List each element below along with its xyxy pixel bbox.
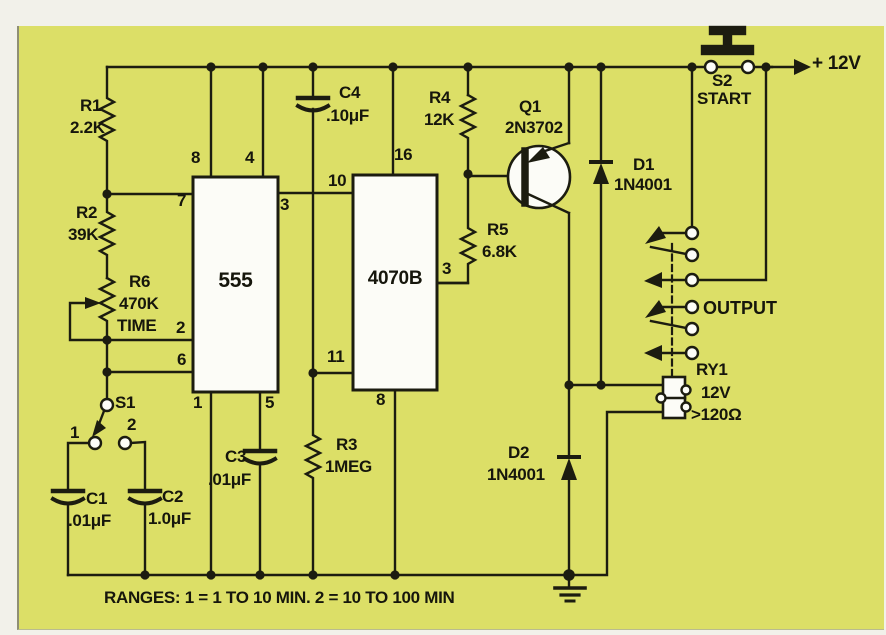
label-r6-value: 470K — [119, 295, 158, 312]
capacitor-c2 — [130, 491, 160, 575]
ground-rail — [68, 412, 663, 575]
label-r4-ref: R4 — [429, 89, 450, 106]
label-s1-ref: S1 — [115, 394, 135, 411]
label-r6-ref: R6 — [129, 273, 150, 290]
transistor-q1 — [508, 143, 570, 385]
label-r1-value: 2.2K — [70, 119, 105, 136]
label-d1-value: 1N4001 — [614, 176, 672, 193]
wiper-arrow-icon — [85, 297, 101, 309]
label-c4-ref: C4 — [339, 84, 360, 101]
label-d2-value: 1N4001 — [487, 466, 545, 483]
ic555-pin3-label: 3 — [280, 196, 289, 213]
ic4070b-label: 4070B — [353, 269, 437, 288]
ranges-note: RANGES: 1 = 1 TO 10 MIN. 2 = 10 TO 100 M… — [104, 589, 455, 606]
label-c4-value: .10μF — [326, 107, 369, 124]
switch-arm-arrow-icon — [92, 420, 106, 437]
ic-4070b — [313, 175, 468, 575]
ic555-pin1-label: 1 — [193, 394, 202, 411]
ic555-pin7-label: 7 — [177, 192, 186, 209]
diode-d1 — [591, 162, 611, 385]
label-r4-value: 12K — [424, 111, 454, 128]
ic555-pin6-label: 6 — [177, 351, 186, 368]
label-q1-ref: Q1 — [519, 98, 541, 115]
switch-s1 — [68, 399, 145, 489]
ic4070b-pin10-label: 10 — [328, 172, 346, 189]
label-c2-value: 1.0μF — [148, 510, 191, 527]
ic-555 — [193, 177, 353, 575]
resistor-r2 — [100, 194, 114, 278]
potentiometer-r6 — [70, 278, 114, 340]
label-s1-pos2: 2 — [127, 416, 136, 433]
ic555-pin8-label: 8 — [191, 149, 200, 166]
label-ry1-value: 12V — [701, 384, 730, 401]
ic4070b-pin11-label: 11 — [327, 348, 344, 365]
label-r5-value: 6.8K — [482, 243, 517, 260]
ic4070b-pin8-label: 8 — [376, 391, 385, 408]
label-d2-ref: D2 — [508, 444, 529, 461]
label-r5-ref: R5 — [487, 221, 508, 238]
power-arrow-icon — [794, 59, 811, 75]
label-c3-value: .01μF — [208, 471, 251, 488]
label-r2-ref: R2 — [76, 204, 97, 221]
ic555-pin4-label: 4 — [245, 149, 254, 166]
label-c3-ref: C3 — [225, 448, 246, 465]
ic4070b-pin16-label: 16 — [394, 146, 412, 163]
label-r3-value: 1MEG — [325, 458, 372, 475]
relay-contacts — [644, 226, 698, 377]
label-c2-ref: C2 — [162, 488, 183, 505]
label-s2-function: START — [697, 90, 751, 107]
capacitor-c1 — [53, 491, 83, 575]
label-r3-ref: R3 — [336, 436, 357, 453]
label-d1-ref: D1 — [633, 156, 654, 173]
label-ry1-ref: RY1 — [696, 361, 728, 378]
label-ry1-resistance: >120Ω — [691, 406, 741, 423]
diode-d2 — [559, 385, 579, 575]
label-c1-ref: C1 — [86, 490, 107, 507]
label-r1-ref: R1 — [80, 97, 101, 114]
resistor-r3 — [306, 109, 320, 575]
power-rail-label: + 12V — [812, 54, 861, 73]
label-s2-ref: S2 — [712, 72, 732, 89]
label-c1-value: .01μF — [68, 512, 111, 529]
output-label: OUTPUT — [703, 299, 777, 317]
label-r6-function: TIME — [117, 317, 156, 334]
ic555-pin5-label: 5 — [265, 394, 274, 411]
ic555-label: 555 — [193, 270, 278, 291]
ic555-pin2-label: 2 — [176, 319, 185, 336]
schematic-page: R1 2.2K R2 39K R6 470K TIME 8 4 7 3 2 6 … — [0, 0, 886, 635]
ic4070b-pin3-label: 3 — [442, 260, 451, 277]
label-s1-pos1: 1 — [70, 424, 79, 441]
label-q1-value: 2N3702 — [505, 119, 563, 136]
label-r2-value: 39K — [68, 226, 98, 243]
